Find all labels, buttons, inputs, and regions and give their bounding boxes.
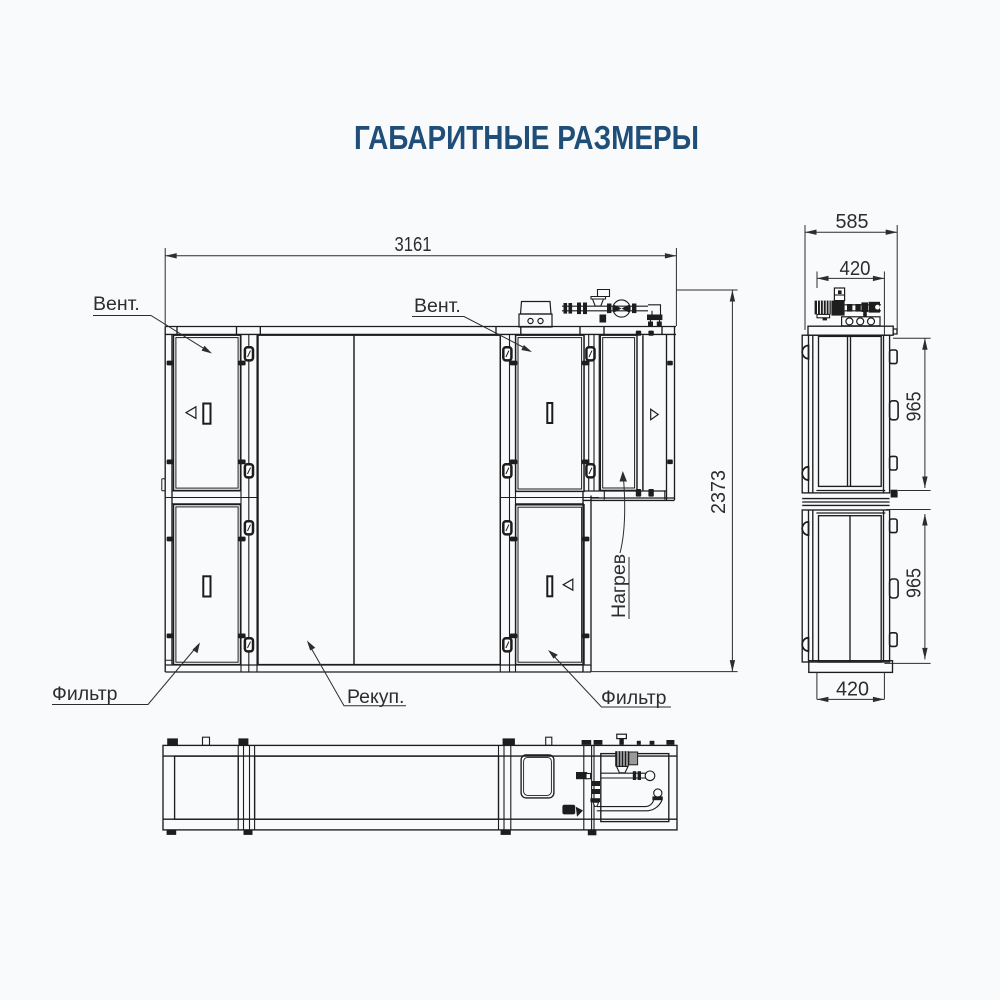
svg-text:Вент.: Вент. [93, 293, 140, 315]
svg-text:Фильтр: Фильтр [52, 683, 118, 705]
svg-text:420: 420 [836, 679, 869, 701]
svg-text:Рекуп.: Рекуп. [347, 686, 404, 708]
svg-text:420: 420 [840, 258, 871, 280]
svg-text:Вент.: Вент. [414, 295, 461, 317]
svg-text:ГАБАРИТНЫЕ РАЗМЕРЫ: ГАБАРИТНЫЕ РАЗМЕРЫ [354, 119, 699, 156]
svg-text:3161: 3161 [395, 234, 432, 256]
svg-text:Нагрев: Нагрев [608, 554, 630, 618]
svg-text:965: 965 [904, 568, 926, 598]
svg-text:585: 585 [836, 211, 869, 233]
svg-text:Фильтр: Фильтр [601, 687, 667, 709]
svg-text:2373: 2373 [708, 470, 730, 514]
svg-text:965: 965 [904, 392, 926, 422]
